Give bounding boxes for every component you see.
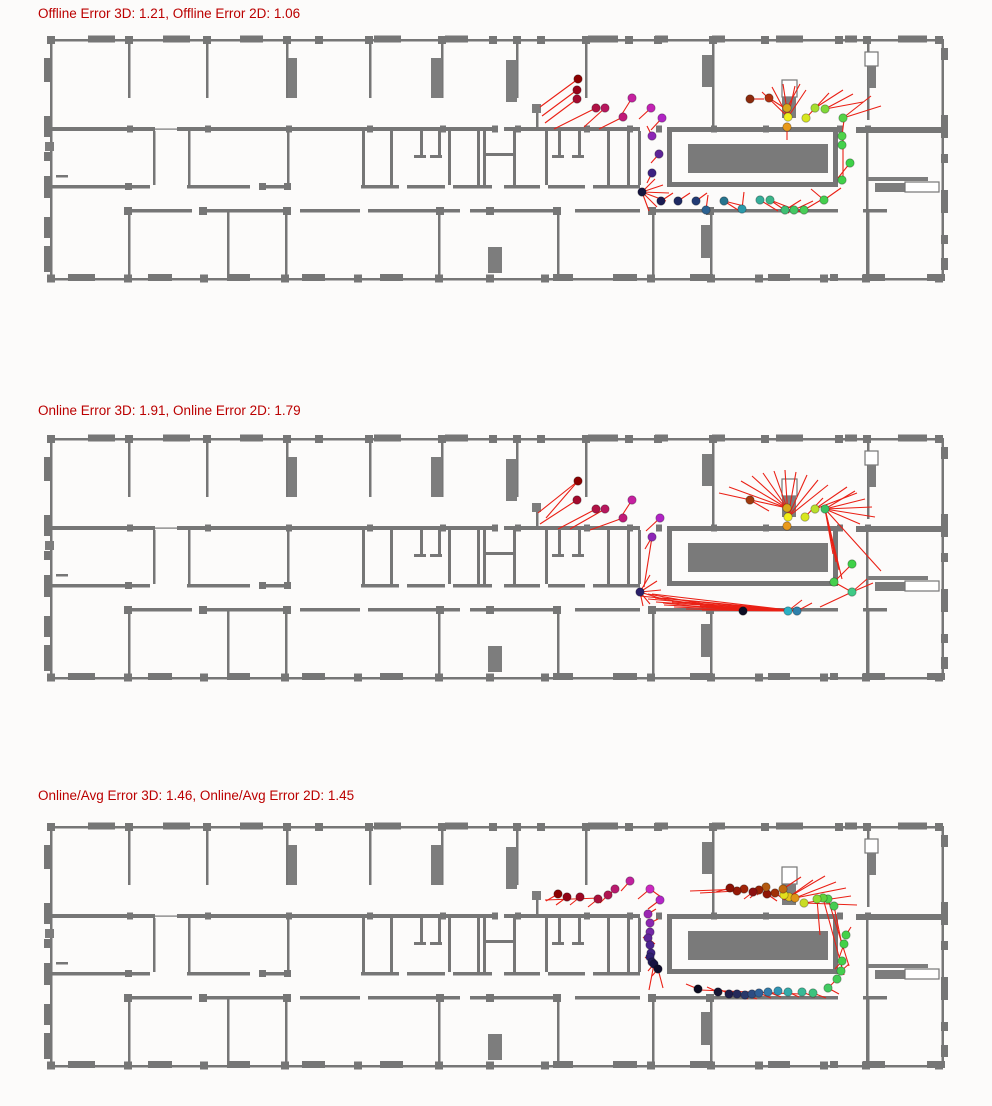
- trajectory-dot: [813, 895, 821, 903]
- trajectory-dot: [779, 885, 787, 893]
- trajectory-dot: [839, 114, 847, 122]
- error-line: [538, 481, 578, 513]
- trajectory-dot: [809, 989, 817, 997]
- trajectory-dot: [646, 885, 654, 893]
- trajectory-dot: [574, 75, 582, 83]
- trajectory-dot: [838, 141, 846, 149]
- trajectory-dot: [746, 496, 754, 504]
- trajectory-dot: [830, 578, 838, 586]
- trajectory-dot: [746, 95, 754, 103]
- trajectory-dot: [756, 196, 764, 204]
- trajectory-dot: [774, 987, 782, 995]
- error-line: [820, 592, 852, 607]
- trajectory-dot: [784, 113, 792, 121]
- error-line: [843, 96, 871, 118]
- trajectory-dot: [783, 504, 791, 512]
- trajectory-dot: [647, 104, 655, 112]
- trajectory-dot: [692, 197, 700, 205]
- error-lines-online: [538, 470, 881, 611]
- trajectory-dot: [638, 188, 646, 196]
- trajectory-dot: [626, 877, 634, 885]
- trajectory-dot: [573, 496, 581, 504]
- trajectory-dot: [811, 505, 819, 513]
- panel-title-offline: Offline Error 3D: 1.21, Offline Error 2D…: [38, 6, 300, 22]
- trajectory-dot: [738, 205, 746, 213]
- trajectory-dot: [821, 505, 829, 513]
- trajectory-dot: [784, 607, 792, 615]
- trajectory-dot: [833, 975, 841, 983]
- trajectory-dot: [574, 477, 582, 485]
- trajectory-dot: [838, 176, 846, 184]
- trajectory-dot: [846, 159, 854, 167]
- trajectory-dot: [648, 132, 656, 140]
- trajectory-dot: [791, 894, 799, 902]
- trajectory-dot: [765, 94, 773, 102]
- trajectory-dot: [801, 513, 809, 521]
- trajectory-dot: [830, 902, 838, 910]
- trajectory-dot: [848, 588, 856, 596]
- trajectory-dot: [657, 197, 665, 205]
- trajectory-dot: [800, 206, 808, 214]
- trajectory-dot: [646, 941, 654, 949]
- trajectory-dot: [563, 893, 571, 901]
- trajectory-dot: [840, 940, 848, 948]
- trajectory-dot: [576, 893, 584, 901]
- trajectory-dot: [793, 607, 801, 615]
- trajectory-dot: [821, 105, 829, 113]
- floor-plan-panel-online-avg: [0, 817, 992, 1087]
- trajectory-dot: [619, 113, 627, 121]
- trajectory-dot: [749, 888, 757, 896]
- trajectory-dot: [573, 86, 581, 94]
- trajectory-dot: [781, 206, 789, 214]
- trajectory-dot: [766, 196, 774, 204]
- trajectory-dot: [592, 505, 600, 513]
- error-line: [545, 898, 600, 900]
- floor-plan-panel-online: [0, 429, 992, 699]
- trajectory-dot: [601, 505, 609, 513]
- trajectory-dot: [798, 988, 806, 996]
- trajectory-dot: [783, 123, 791, 131]
- floor-plan-panel-offline: [0, 30, 992, 300]
- trajectory-dot: [636, 588, 644, 596]
- trajectory-dot: [783, 104, 791, 112]
- trajectory-dot: [628, 94, 636, 102]
- trajectory-dot: [842, 931, 850, 939]
- trajectory-dot: [648, 169, 656, 177]
- trajectory-dot: [702, 206, 710, 214]
- trajectory-dot: [644, 910, 652, 918]
- trajectory-dot: [755, 989, 763, 997]
- trajectory-dot: [739, 607, 747, 615]
- trajectory-dot: [784, 513, 792, 521]
- trajectory-dot: [820, 196, 828, 204]
- trajectory-dot: [733, 990, 741, 998]
- trajectory-dot: [838, 957, 846, 965]
- trajectory-dot: [783, 522, 791, 530]
- trajectory-dot: [824, 984, 832, 992]
- trajectory-dot: [694, 985, 702, 993]
- trajectory-dot: [656, 896, 664, 904]
- trajectory-dot: [601, 104, 609, 112]
- trajectory-dot: [838, 132, 846, 140]
- trajectory-dot: [800, 899, 808, 907]
- trajectory-dot: [554, 890, 562, 898]
- trajectory-dot: [674, 197, 682, 205]
- trajectory-dot: [790, 206, 798, 214]
- panel-title-online: Online Error 3D: 1.91, Online Error 2D: …: [38, 403, 301, 419]
- panel-title-online-avg: Online/Avg Error 3D: 1.46, Online/Avg Er…: [38, 788, 354, 804]
- trajectory-dot: [604, 891, 612, 899]
- trajectory-dot: [573, 95, 581, 103]
- trajectory-dot: [725, 990, 733, 998]
- error-line: [843, 106, 881, 118]
- trajectory-dot: [802, 114, 810, 122]
- trajectory-dot: [658, 114, 666, 122]
- figure-page: { "chart_data": { "type": "scatter", "de…: [0, 0, 992, 1106]
- trajectory-dot: [592, 104, 600, 112]
- trajectory-dot: [848, 560, 856, 568]
- trajectory-dot: [656, 514, 664, 522]
- trajectory-dot: [784, 988, 792, 996]
- error-line: [815, 90, 843, 108]
- trajectory-dot: [771, 889, 779, 897]
- trajectory-dot: [646, 919, 654, 927]
- trajectory-dot: [594, 895, 602, 903]
- trajectory-dot: [619, 514, 627, 522]
- trajectory-dot: [628, 496, 636, 504]
- trajectory-dot: [654, 965, 662, 973]
- trajectory-dot: [811, 104, 819, 112]
- trajectory-dot: [611, 885, 619, 893]
- trajectory-dot: [764, 988, 772, 996]
- trajectory-dot: [720, 197, 728, 205]
- trajectory-dot: [648, 533, 656, 541]
- trajectory-dot: [655, 150, 663, 158]
- trajectory-dot: [837, 967, 845, 975]
- trajectory-dot: [714, 988, 722, 996]
- trajectory-dot: [726, 884, 734, 892]
